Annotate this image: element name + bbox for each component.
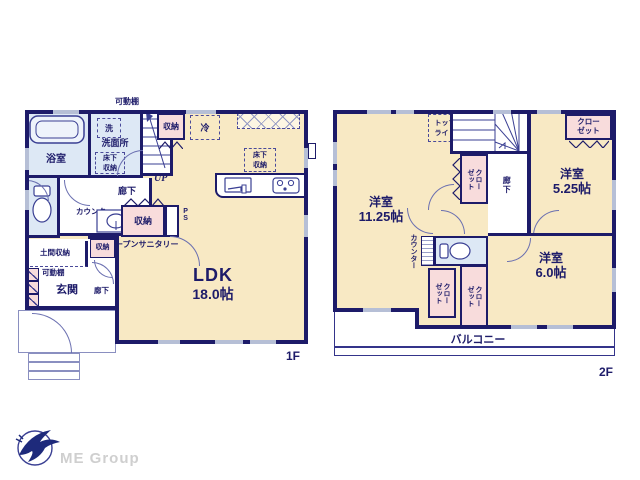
counter-2f bbox=[421, 236, 434, 266]
porch-step bbox=[28, 371, 80, 380]
porch-step bbox=[28, 362, 80, 371]
wall bbox=[115, 310, 119, 344]
window bbox=[53, 110, 79, 114]
closet-topright: クロー ゼット bbox=[565, 114, 612, 140]
balcony-label: バルコニー bbox=[423, 334, 533, 347]
wall bbox=[612, 110, 616, 329]
side-door-bay bbox=[308, 143, 316, 159]
kitchen-fixtures-icon bbox=[217, 175, 306, 196]
storage-small: 収納 bbox=[90, 239, 115, 258]
bathroom-label: 浴室 bbox=[31, 154, 81, 166]
hall-small-label: 廊下 bbox=[94, 287, 109, 296]
wall bbox=[88, 236, 119, 239]
window bbox=[304, 148, 308, 168]
stairs-up-label: UP bbox=[154, 173, 167, 185]
pipe-space bbox=[165, 205, 179, 237]
wall bbox=[488, 233, 616, 236]
storage-mid: 収納 bbox=[121, 205, 165, 237]
wall bbox=[115, 238, 119, 310]
window bbox=[612, 268, 616, 292]
entrance-label: 玄関 bbox=[56, 284, 78, 297]
toilet-icon bbox=[436, 238, 486, 264]
company-logo: ME Group bbox=[14, 424, 214, 476]
window bbox=[25, 190, 29, 210]
closet-stairs: クロー ゼット bbox=[460, 154, 488, 204]
storage-top: 収納 bbox=[157, 113, 185, 140]
window bbox=[158, 340, 180, 344]
kitchen-counter bbox=[215, 173, 308, 198]
movable-shelf-entry-label: 可動棚 bbox=[42, 269, 65, 278]
bathtub-icon bbox=[28, 114, 86, 146]
toilet-room-2f bbox=[434, 236, 488, 266]
floor1-label: 1F bbox=[286, 350, 300, 364]
stairs-fan-icon bbox=[453, 110, 527, 151]
ldk-label-group: LDK 18.0帖 bbox=[168, 265, 258, 302]
ldk-label: LDK bbox=[168, 265, 258, 286]
washer-box: 洗 bbox=[97, 118, 121, 138]
wall bbox=[116, 340, 308, 344]
wall bbox=[333, 110, 337, 312]
window bbox=[333, 170, 337, 186]
window bbox=[511, 325, 537, 329]
hanging-cabinet bbox=[237, 113, 300, 129]
window bbox=[363, 308, 391, 312]
stairs-down bbox=[450, 110, 530, 154]
floorplan-2f: バルコニー トップライト DN クロー ゼット bbox=[333, 110, 617, 380]
closet-botleft: クロー ゼット bbox=[428, 268, 456, 318]
closet-door-marks bbox=[569, 140, 609, 148]
window bbox=[25, 148, 29, 170]
hall-label: 廊下 bbox=[118, 186, 136, 196]
window bbox=[396, 110, 414, 114]
movable-shelf-label: 可動棚 bbox=[115, 97, 139, 106]
window bbox=[250, 340, 276, 344]
floorplan-canvas: 可動棚 浴室 洗 洗面所 床下収納 bbox=[0, 0, 640, 480]
bathroom: 浴室 bbox=[25, 110, 91, 178]
counter-2f-label: カウンター bbox=[409, 234, 417, 269]
closet-botmid: クロー ゼット bbox=[460, 265, 488, 327]
wall bbox=[528, 110, 531, 236]
wall bbox=[25, 306, 119, 310]
underfloor-kitchen-box: 床下収納 bbox=[244, 148, 276, 172]
window bbox=[547, 325, 573, 329]
window bbox=[367, 110, 391, 114]
hall-2f-label: 廊下 bbox=[502, 176, 511, 194]
doma-storage: 土間収納 bbox=[25, 241, 88, 267]
window bbox=[493, 110, 511, 114]
window bbox=[215, 340, 243, 344]
floor2-label: 2F bbox=[599, 366, 613, 380]
window bbox=[186, 110, 216, 114]
pipe-space-label: PS bbox=[181, 208, 189, 222]
porch-step bbox=[28, 353, 80, 362]
ldk-floor-lower bbox=[116, 306, 308, 344]
room-topright-label-group: 洋室 5.25帖 bbox=[532, 168, 612, 197]
bird-logo-icon bbox=[14, 424, 62, 472]
washroom-label: 洗面所 bbox=[91, 138, 139, 148]
ldk-size-label: 18.0帖 bbox=[168, 286, 258, 302]
closet-door-marks bbox=[159, 141, 183, 149]
window bbox=[333, 142, 337, 164]
window bbox=[304, 215, 308, 237]
floorplan-1f: 可動棚 浴室 洗 洗面所 床下収納 bbox=[18, 110, 318, 390]
wall bbox=[25, 110, 29, 310]
fridge-box: 冷 bbox=[190, 115, 220, 140]
window bbox=[612, 180, 616, 210]
company-name: ME Group bbox=[60, 450, 140, 467]
window bbox=[537, 110, 561, 114]
hall-2f: 廊下 bbox=[488, 154, 530, 236]
